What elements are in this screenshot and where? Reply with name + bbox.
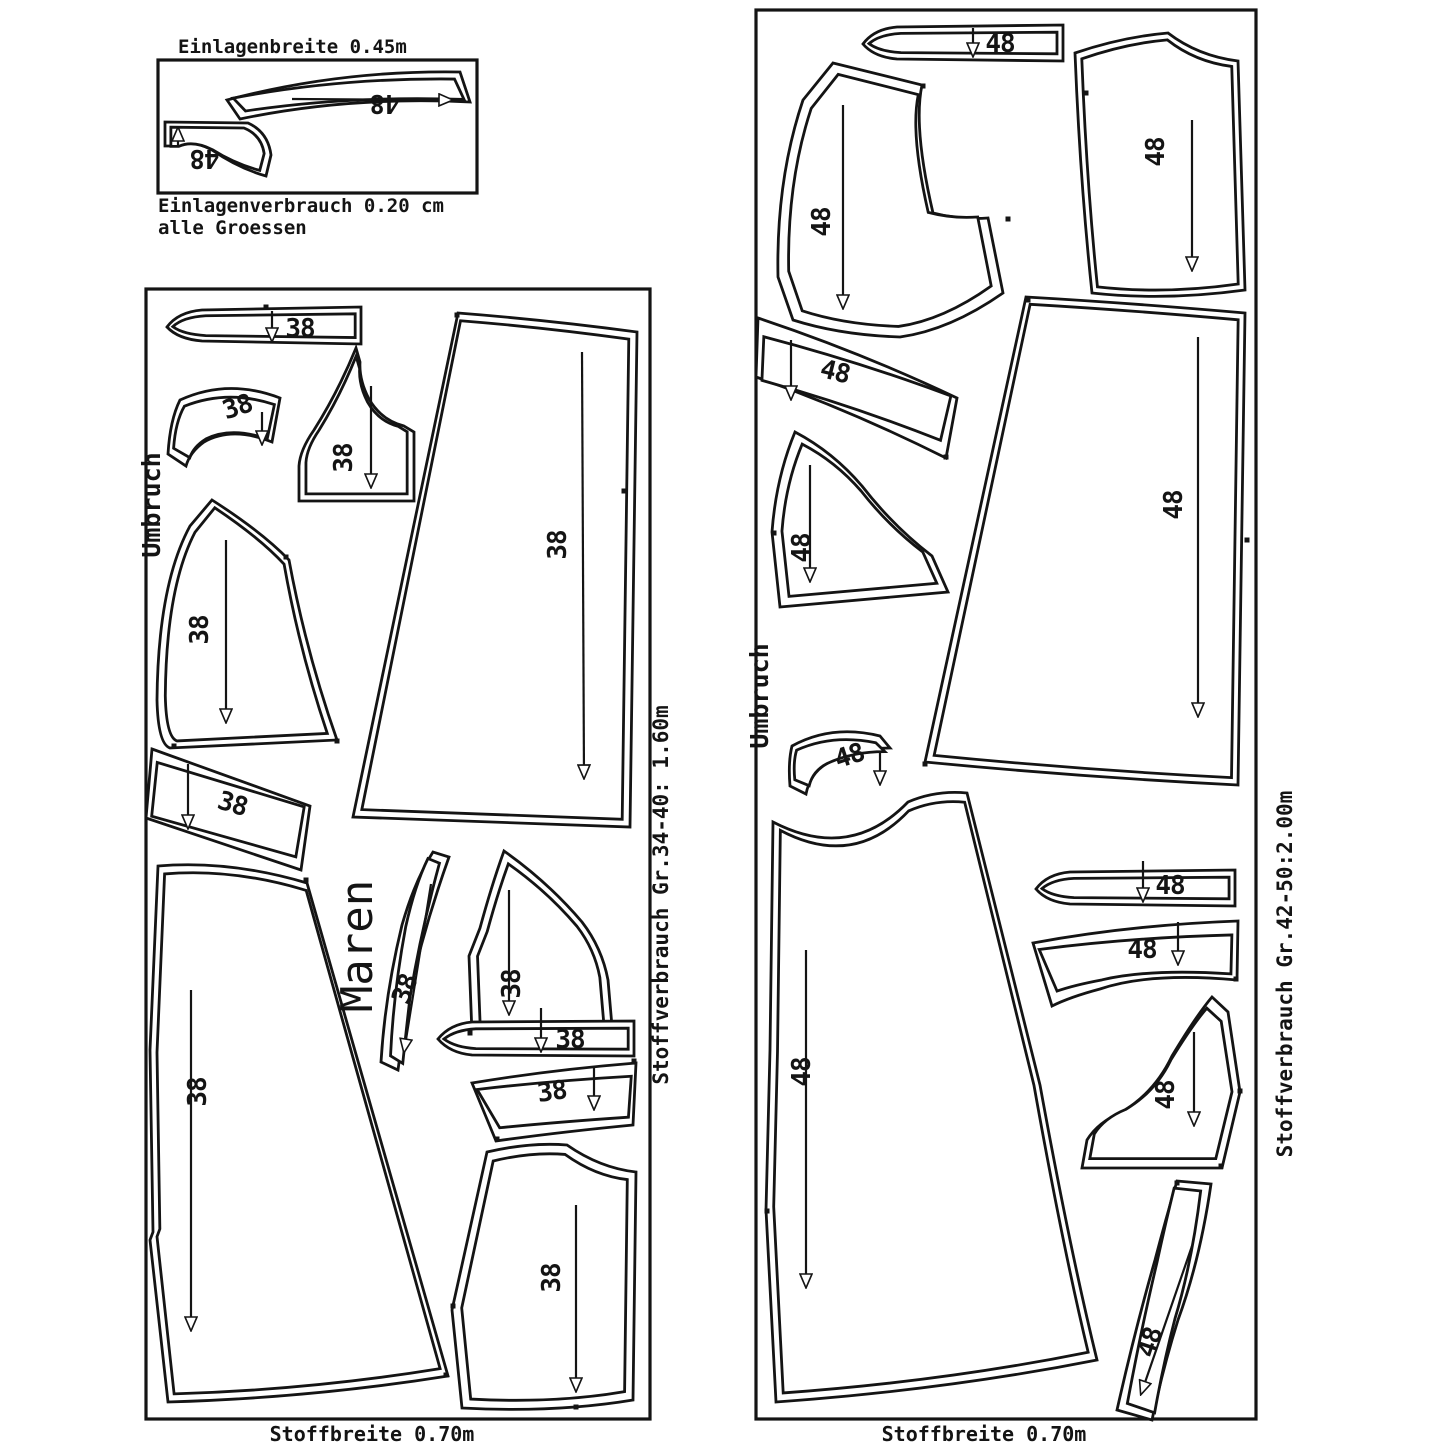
size-label: 48: [370, 88, 400, 118]
size-label: 38: [555, 1025, 585, 1055]
piece-belt-48: [863, 25, 1063, 61]
size-label: 48: [807, 207, 837, 237]
model-name: Maren: [332, 880, 383, 1012]
size-label: 38: [285, 314, 315, 344]
piece-side-panel-48: [778, 63, 1003, 337]
size-label: 48: [787, 1057, 817, 1087]
fabric-width-right: Stoffbreite 0.70m: [882, 1422, 1087, 1445]
fold-label-right: Umbruch: [745, 643, 774, 748]
piece-facing-strip-48: [1117, 1181, 1211, 1420]
pattern-cutting-diagram: 48 48 Einlagenbreite 0.45m Einlagenverbr…: [0, 0, 1445, 1445]
piece-belt-2: [438, 1021, 634, 1056]
piece-belt: [167, 307, 361, 344]
size-label: 38: [329, 443, 359, 473]
size-label: 38: [543, 530, 573, 560]
size-label: 48: [1159, 490, 1189, 520]
size-label: 38: [497, 969, 527, 999]
layout-size-48: 48 48 48 48 48 48 48 48 48 48 48 48 Umbr…: [745, 10, 1297, 1445]
fabric-usage-left: Stoffverbrauch Gr.34-40: 1.60m: [649, 705, 673, 1084]
inset-usage-line1: Einlagenverbrauch 0.20 cm: [158, 195, 444, 217]
piece-skirt-front: [353, 313, 637, 827]
size-label: 48: [1127, 935, 1157, 965]
size-label: 38: [185, 615, 215, 645]
piece-belt-2-48: [1036, 870, 1235, 906]
size-label: 48: [190, 143, 220, 173]
size-label: 48: [1141, 137, 1171, 167]
size-label: 38: [183, 1077, 213, 1107]
piece-side-panel: [157, 500, 337, 748]
inset-usage-line2: alle Groessen: [158, 217, 307, 239]
layout-size-38: 38 38 38 38 38 38 38 38 38 38 38 38 Umbr…: [137, 289, 673, 1445]
piece-waistband-48: [756, 318, 957, 458]
size-label: 38: [537, 1263, 567, 1293]
size-label: 48: [1151, 1080, 1181, 1110]
piece-side-front: [299, 348, 414, 501]
piece-side-front-48: [772, 432, 948, 607]
interfacing-inset: 48 48 Einlagenbreite 0.45m Einlagenverbr…: [158, 36, 477, 239]
pattern-sheet: 48 48 Einlagenbreite 0.45m Einlagenverbr…: [0, 0, 1445, 1445]
piece-interfacing-band: [227, 72, 470, 119]
inset-title: Einlagenbreite 0.45m: [178, 36, 407, 58]
fabric-width-left: Stoffbreite 0.70m: [270, 1422, 475, 1445]
size-label: 38: [535, 1075, 569, 1109]
fabric-usage-right: Stoffverbrauch Gr.42-50:2.00m: [1273, 791, 1297, 1158]
fold-label-left: Umbruch: [137, 452, 166, 557]
size-label: 48: [985, 29, 1015, 59]
size-label: 48: [787, 533, 817, 563]
size-label: 48: [1155, 871, 1185, 901]
